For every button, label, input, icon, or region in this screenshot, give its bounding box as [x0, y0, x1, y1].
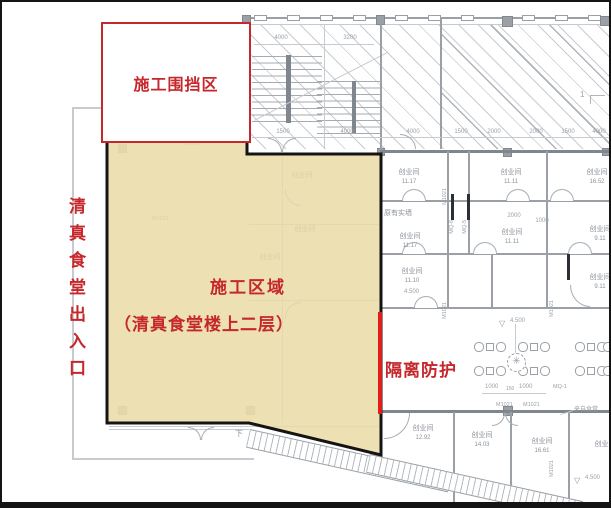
zone-title: 施工区域 [210, 273, 286, 298]
isolation-barrier-line [378, 312, 382, 414]
enclosure-area-label: 施工围挡区 [133, 71, 218, 95]
entrance-label: 清真食堂出入口 [63, 197, 88, 386]
enclosure-area-box: 施工围挡区 [101, 22, 251, 143]
construction-zone-polygon [2, 2, 609, 502]
zone-subtitle: （清真食堂楼上二层） [114, 310, 294, 335]
floor-plan-image: 4000 3200 1500 4000 4000 1500 2000 2000 … [0, 0, 611, 508]
plan-stage: 4000 3200 1500 4000 4000 1500 2000 2000 … [2, 2, 609, 502]
isolation-barrier-label: 隔离防护 [385, 356, 457, 381]
